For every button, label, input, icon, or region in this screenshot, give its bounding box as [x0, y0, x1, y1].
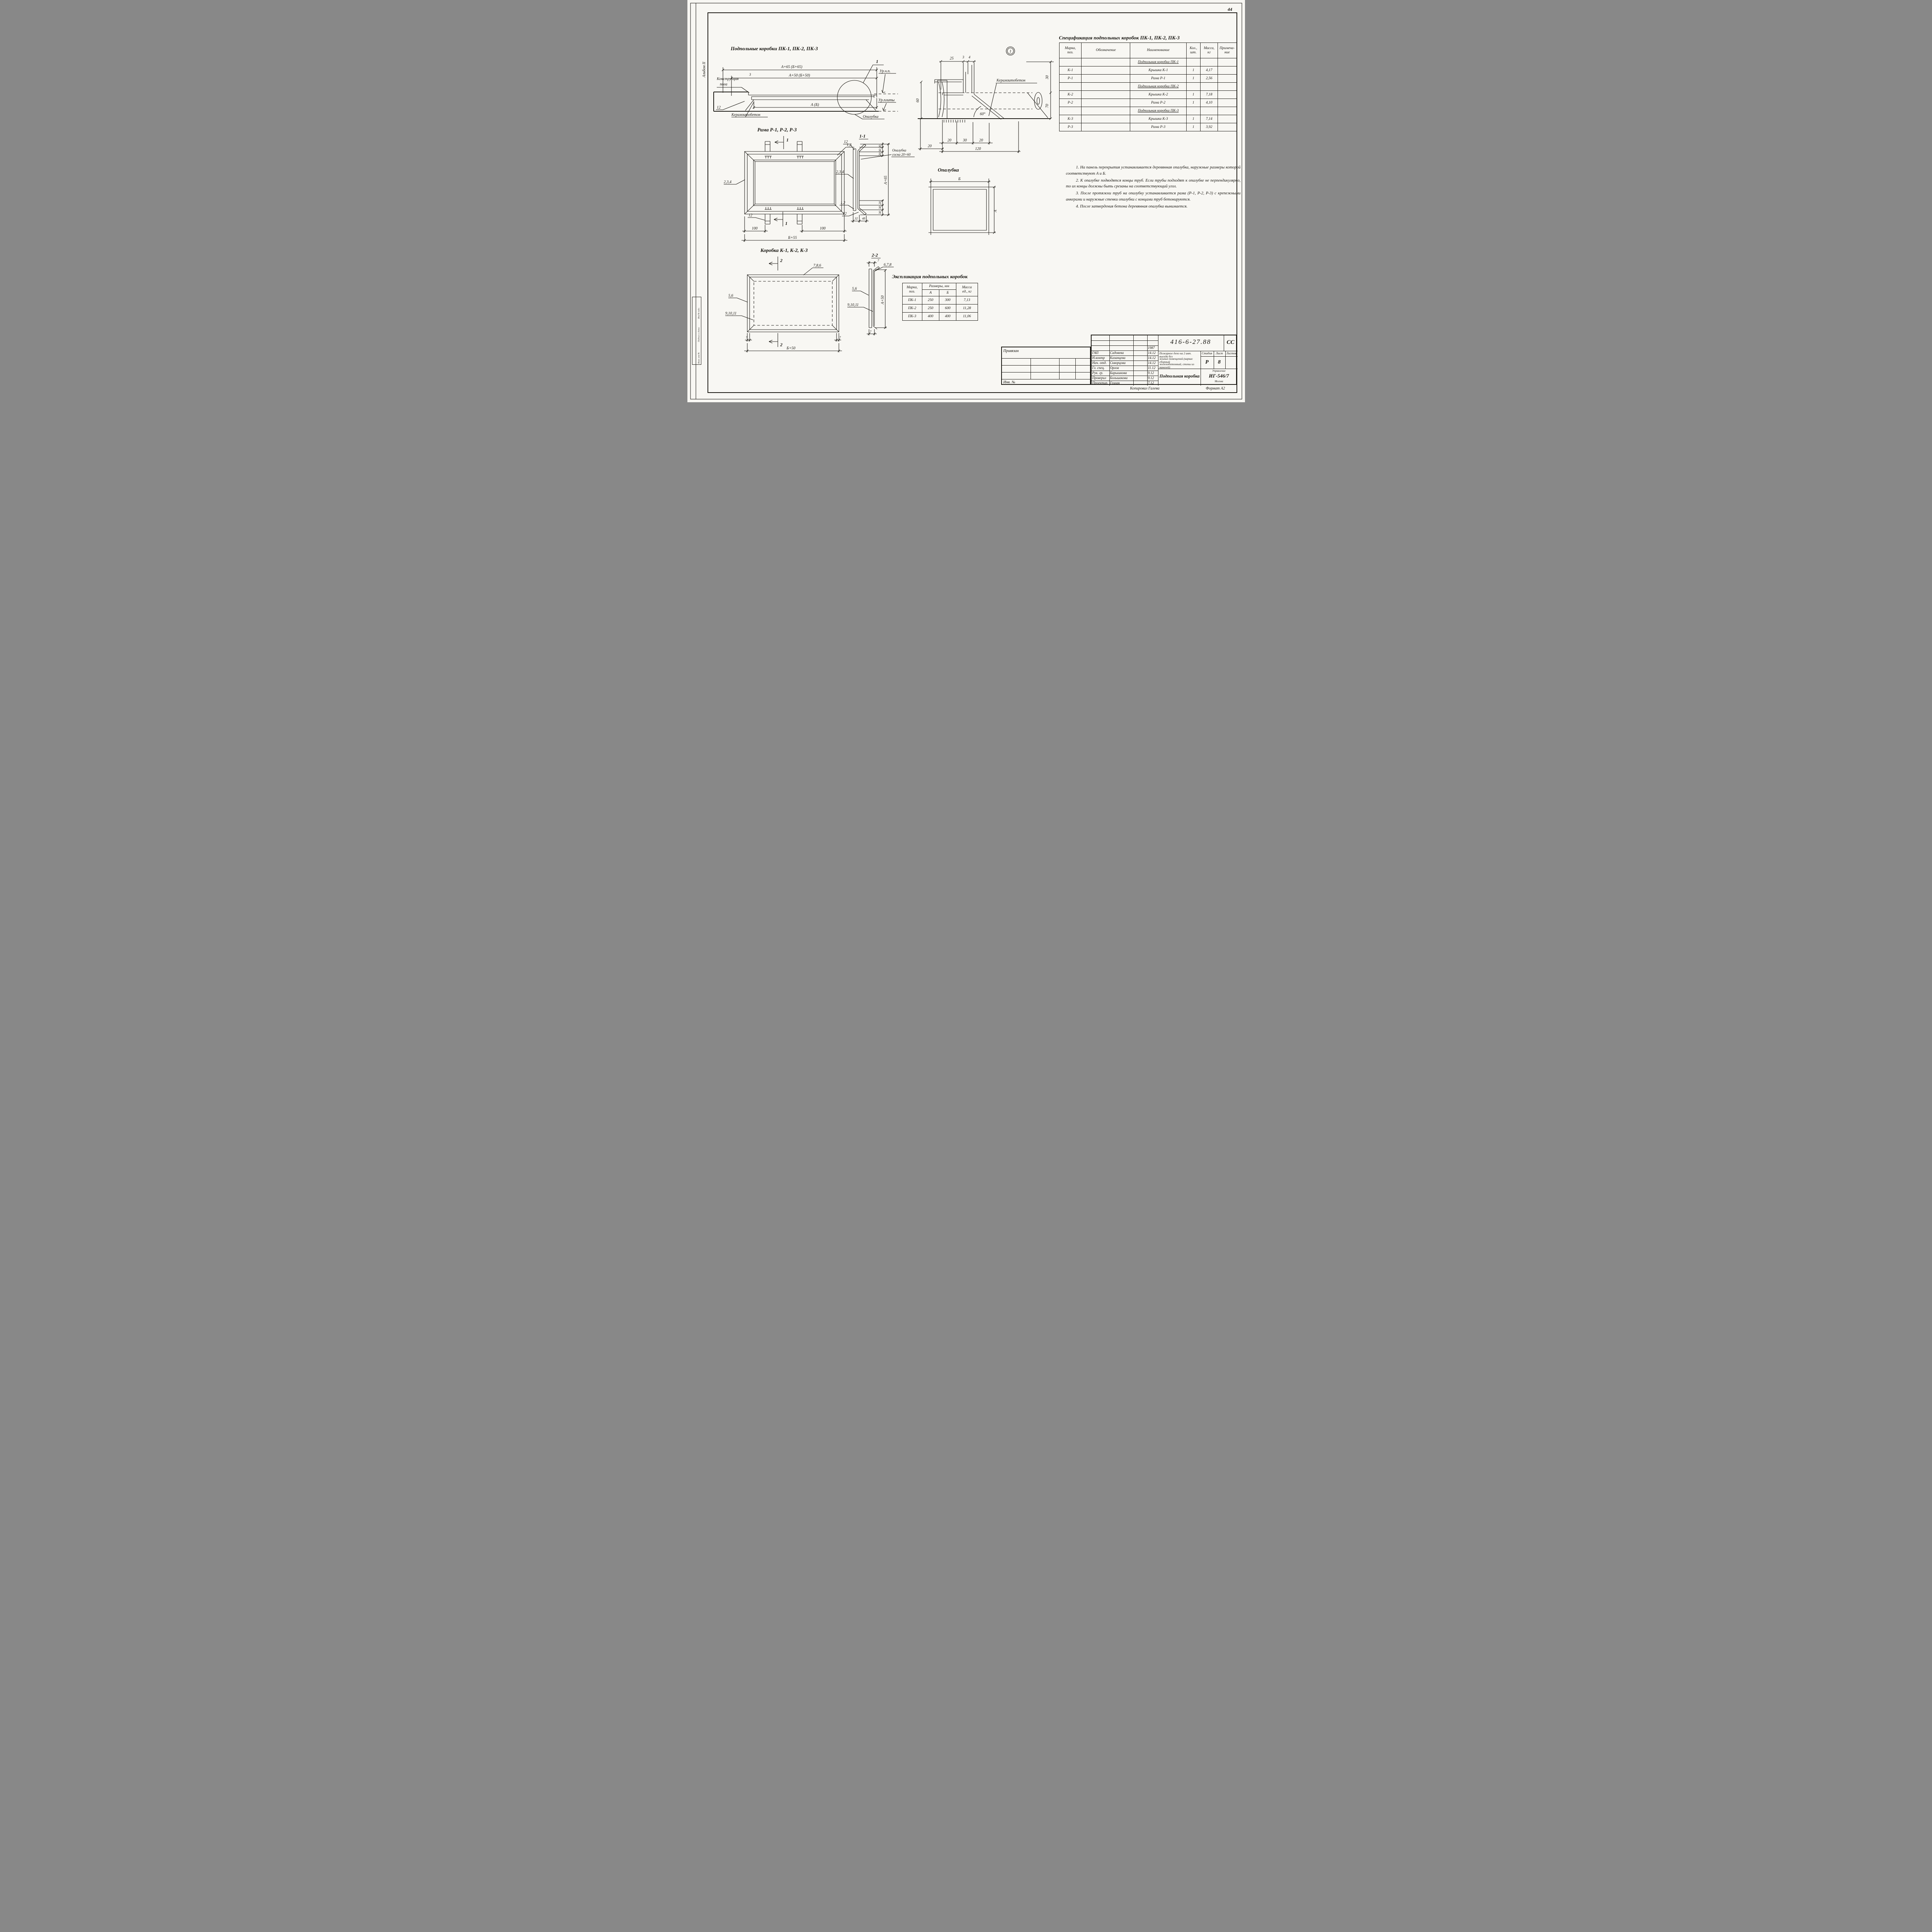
spec-group-row: Подпольная коробка ПК-3 — [1059, 107, 1236, 115]
doc-code: СС — [1224, 339, 1238, 346]
spec-row: Р-1Рама Р-112,56 — [1059, 75, 1236, 83]
spec-row: Р-2Рама Р-214,10 — [1059, 99, 1236, 107]
sheets-label: Листов — [1225, 352, 1238, 355]
specification-title: Спецификация подпольных коробок ПК-1, ПК… — [1059, 35, 1237, 41]
stamp-role-6: Проектир. — [1092, 381, 1108, 385]
title-block-main: 1987 ГАП Садовева 14.12 Н.контр Казанцев… — [1091, 335, 1237, 385]
stamp-name-2: Скворцова — [1110, 361, 1126, 365]
detail-dim-60l: 60 — [916, 99, 920, 102]
note-1: 1. На панель перекрытия устанавливается … — [1066, 165, 1241, 177]
spec-col-name: Наименование — [1130, 43, 1186, 58]
expl-col-dims: Размеры, мм — [922, 283, 956, 290]
detail-dim-30m: 30 — [963, 138, 967, 143]
spec-col-mark: Марка, поз. — [1059, 43, 1082, 58]
box-label-top: 7,8,6 — [813, 264, 821, 268]
spec-row: К-3Крышка К-317,14 — [1059, 115, 1236, 123]
frame-plan-title: Рама Р-1, Р-2, Р-3 — [757, 127, 797, 133]
spec-row: К-2Крышка К-217,18 — [1059, 91, 1236, 99]
concrete-label: Керамзитобетон — [731, 113, 760, 117]
s22-label-left2: 9,10,11 — [847, 303, 859, 307]
detail-concrete-label: Керамзитобетон — [996, 78, 1026, 83]
level-slab-label: Ур.плиты — [878, 98, 895, 102]
detail-callout: 1 — [1009, 49, 1011, 54]
stamp-role-5: Проверил — [1092, 376, 1106, 380]
spec-group-row: Подпольная коробка ПК-2 — [1059, 83, 1236, 91]
stage-value: Р — [1201, 359, 1214, 365]
expl-row: ПК-340040011,06 — [902, 313, 978, 321]
expl-row: ПК-225060011,28 — [902, 304, 978, 313]
stamp-name-3: Орлов — [1110, 366, 1119, 370]
section-2-2-title: 2-2 — [871, 252, 878, 258]
stamp-date-6: 7.12 — [1148, 381, 1154, 385]
spec-col-qty: Кол., шт. — [1186, 43, 1201, 58]
frame-plan-drawing: Рама Р-1, Р-2, Р-3 1 1 1,2 2,3,4 12 100 … — [724, 127, 854, 242]
section-1-1-title: 1-1 — [859, 133, 866, 139]
stamp-date-5: 9.12 — [1148, 376, 1154, 380]
stamp-name-4: Барышкова — [1110, 371, 1127, 375]
org-line-3: Москва — [1201, 380, 1238, 383]
frame-dim-left: 100 — [752, 226, 757, 231]
s22-dim-7-bottom: 7 — [870, 330, 872, 333]
frame-dim-total: Б+55 — [787, 236, 797, 240]
drawing-title: Подпольная коробка — [1159, 374, 1201, 379]
s11-label-top: 12 — [844, 140, 848, 144]
inventory-label: Инв. № — [1003, 380, 1015, 384]
dim-width: А (Б) — [810, 103, 819, 107]
s22-dim-total: А+50 — [881, 296, 885, 305]
dim-thickness: 12 — [717, 105, 721, 110]
floor-label-1: Конструкция — [716, 77, 739, 81]
detail-dim-120: 120 — [975, 147, 981, 151]
stamp-date-4: 9.12 — [1148, 371, 1154, 375]
object-description-3: железобетонный, стены из панелей) — [1160, 363, 1200, 369]
detail-dim-25: 25 — [950, 56, 954, 61]
detail-dim-20l: 20 — [928, 144, 932, 148]
box-label-left1: 5,6 — [728, 294, 733, 298]
frame-label-left: 2,3,4 — [724, 180, 731, 184]
s11-dim-rb0: 20 — [878, 201, 882, 204]
s11-label-mid: 2,3,4 — [836, 170, 844, 174]
stamp-name-0: Садовева — [1110, 351, 1124, 355]
expl-col-mass: Масса ед., кг — [956, 283, 978, 296]
detail-dim-20a: 20 — [947, 138, 951, 143]
sheet-value: 8 — [1214, 359, 1225, 365]
stamp-role-2: Нач. отд. — [1092, 361, 1107, 365]
side-stamp-col3: Взам. инв.№ — [698, 352, 700, 364]
explication-table: Марка, поз. Размеры, мм Масса ед., кг А … — [902, 283, 978, 321]
detail-dim-70r: 70 — [1045, 104, 1049, 108]
notes-block: 1. На панель перекрытия устанавливается … — [1066, 165, 1241, 210]
drawing-sheet: 44 Подпольные коробки ПК-1, ПК-2, ПК-3 А… — [687, 0, 1245, 402]
callout-1: 1 — [876, 59, 878, 64]
detail-drawing: 1 25 3 4 Керамзитобетон 30 70 60 20 30 2… — [916, 47, 1054, 153]
doc-number: 416-6-27.88 — [1158, 338, 1224, 346]
specification-table: Марка, поз. Обозначение Наименование Кол… — [1059, 43, 1237, 131]
frame-dim-right: 100 — [820, 226, 825, 231]
stamp-name-1: Казанцева — [1110, 356, 1126, 360]
stamp-date-1: 14.12 — [1148, 356, 1156, 360]
formwork-plan-title: Опалубка — [938, 167, 959, 173]
spec-col-note: Примеча- ние — [1218, 43, 1236, 58]
explication-title: Экспликация подпольных коробок — [892, 274, 978, 280]
title-block: Привязан Инв. № 1987 — [1001, 335, 1237, 385]
expl-row: ПК-12503007,13 — [902, 296, 978, 304]
s11-note-2: сосна 20×60 — [892, 153, 911, 156]
detail-dim-3: 3 — [962, 55, 964, 59]
s11-dim-total: А+65 — [884, 176, 888, 185]
box-section-mark-top: 2 — [780, 258, 782, 263]
stamp-role-4: Рук. гр. — [1092, 371, 1103, 375]
note-2: 2. К опалубке подводятся концы труб. Есл… — [1066, 178, 1241, 190]
s11-label-bottom1: 1,2 — [840, 201, 845, 205]
spec-group-row: Подпольная коробка ПК-1 — [1059, 58, 1236, 66]
expl-col-a: А — [922, 290, 939, 296]
album-side-label: Альбом II — [702, 62, 706, 77]
page-number: 44 — [1227, 7, 1232, 12]
s22-label-left1: 5,6 — [852, 287, 857, 291]
detail-dim-20b: 20 — [979, 138, 983, 143]
floor-section-title: Подпольные коробки ПК-1, ПК-2, ПК-3 — [730, 46, 818, 51]
stamp-role-1: Н.контр — [1092, 356, 1105, 360]
level-floor-label: Ур.ч.п. — [879, 69, 891, 73]
org-line-2: ИГ-546/7 — [1201, 373, 1238, 379]
frame-section-mark-bottom: 1 — [785, 221, 787, 226]
detail-angle: 60° — [980, 112, 985, 116]
dim-top-inner: А+50 (Б+50) — [788, 73, 810, 78]
attached-label: Привязан — [1003, 349, 1019, 353]
dim-top-outer: А+65 (Б+65) — [781, 65, 802, 69]
stamp-date-2: 14.12 — [1148, 361, 1156, 365]
spec-col-designation: Обозначение — [1082, 43, 1130, 58]
format-label: Формат А2 — [1206, 386, 1225, 391]
org-line-1: Управление — [1201, 370, 1238, 373]
specification-block: Спецификация подпольных коробок ПК-1, ПК… — [1059, 35, 1237, 131]
box-label-left2: 9,10,11 — [725, 311, 736, 316]
box-section-mark-bottom: 2 — [780, 342, 782, 347]
note-3: 3. После протяжки труб на опалубку устан… — [1066, 190, 1241, 203]
formwork-dim-a: А — [993, 209, 998, 213]
expl-col-b: Б — [939, 290, 956, 296]
detail-dim-4: 4 — [968, 55, 970, 59]
stamp-name-6: Гозлан — [1110, 381, 1120, 385]
stamp-year: 1987 — [1148, 346, 1155, 350]
stage-label: Стадия — [1201, 352, 1214, 355]
box-plan-title: Коробка К-1, К-2, К-3 — [760, 247, 808, 253]
frame-section-mark-top: 1 — [786, 137, 789, 143]
stamp-date-0: 14.12 — [1148, 351, 1156, 355]
spec-col-mass: Масса, кг — [1201, 43, 1218, 58]
box-plan-drawing: Коробка К-1, К-2, К-3 2 2 7,8,6 5,6 9,10… — [725, 247, 842, 352]
s11-dim-rb2: 30 — [878, 211, 882, 214]
expl-col-mark: Марка, поз. — [902, 283, 922, 296]
side-stamp-col1: Инв.№ подл. — [698, 308, 700, 319]
formwork-dim-b: Б — [958, 177, 961, 181]
floor-label-2: пола — [720, 82, 727, 87]
sheet-label: Лист — [1214, 352, 1225, 355]
s11-dim-48: 48 — [862, 217, 865, 220]
formwork-plan-drawing: Опалубка Б А — [929, 167, 998, 235]
floor-section-drawing: Подпольные коробки ПК-1, ПК-2, ПК-3 А+65… — [714, 46, 898, 119]
spec-row: К-1Крышка К-114,17 — [1059, 66, 1236, 75]
dim-gap: 3 — [749, 73, 751, 77]
explication-block: Экспликация подпольных коробок Марка, по… — [892, 274, 978, 321]
note-4: 4. После затвердения бетона деревянная о… — [1066, 204, 1241, 210]
section-2-2-drawing: 2-2 6,7,8 5,6 9,10,11 А+50 7 7 — [847, 252, 894, 335]
box-dim-total: Б+50 — [786, 346, 795, 350]
title-block-extension: Привязан Инв. № — [1001, 347, 1091, 385]
stamp-role-3: Гл. спец. — [1092, 366, 1105, 370]
s11-dim-rb1: 30 — [878, 206, 882, 209]
detail-circle — [837, 80, 871, 114]
s11-label-bottom2: 12 — [843, 212, 847, 216]
stamp-role-0: ГАП — [1092, 351, 1099, 355]
s11-dim-rt2: 20 — [878, 153, 882, 156]
spec-row: Р-3Рама Р-313,92 — [1059, 123, 1236, 131]
s11-dim-rt1: 30 — [878, 149, 882, 152]
s11-note-1: Опалубка — [892, 148, 906, 152]
side-stamp: Инв.№ подл. Подпись и дата Взам. инв.№ — [692, 297, 701, 365]
formwork-label: Опалубка — [863, 115, 878, 119]
stamp-date-3: 11.12 — [1148, 366, 1156, 370]
stamp-name-5: Большакова — [1110, 376, 1128, 380]
s11-dim-32: 32 — [854, 217, 858, 220]
detail-dim-30r: 30 — [1045, 75, 1049, 80]
copied-by: Копировал Галева — [1130, 386, 1160, 391]
s11-dim-rt0: 20 — [878, 145, 882, 148]
box-dim-7r: 7 — [839, 336, 841, 339]
side-stamp-col2: Подпись и дата — [698, 327, 700, 342]
frame-label-bottom: 12 — [748, 213, 752, 218]
s22-label-top: 6,7,8 — [884, 263, 891, 267]
s22-dim-7-top: 7 — [878, 259, 879, 262]
